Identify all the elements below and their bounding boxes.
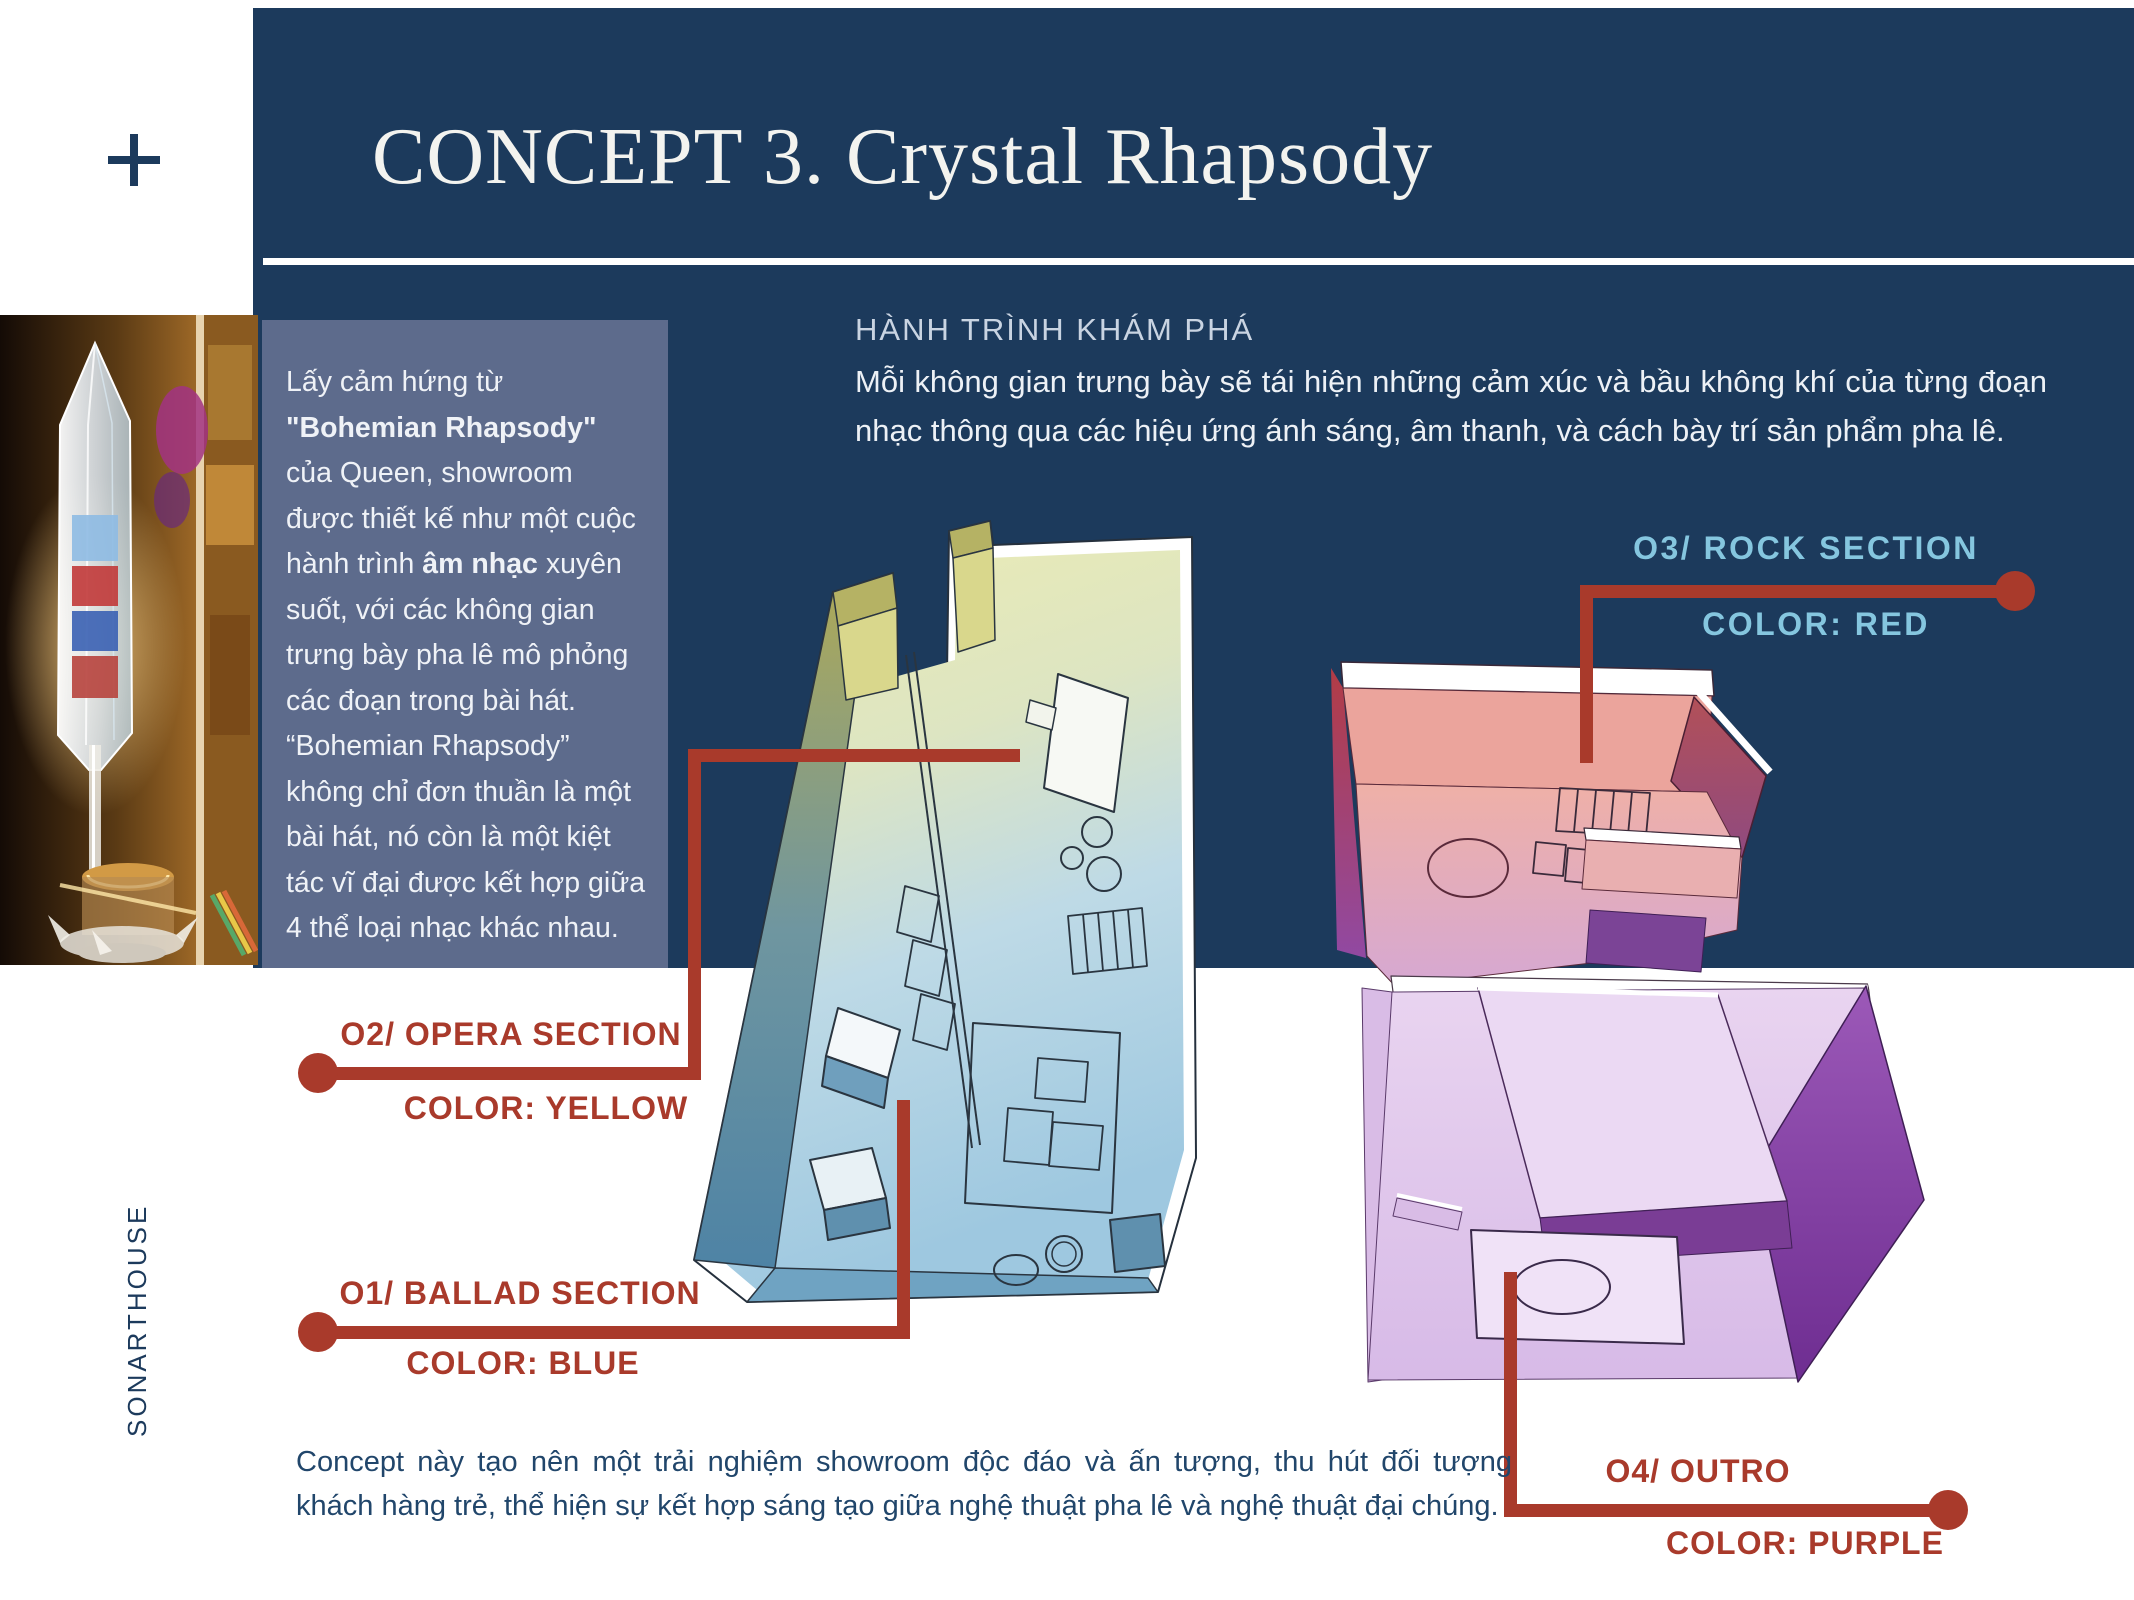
callout-color-rock: COLOR: RED [1702,606,1930,643]
callout-color-outro: COLOR: PURPLE [1666,1525,1944,1562]
callout-line-opera-h [688,749,1020,762]
callout-line-rock-h [1580,585,2015,598]
callout-dot-ballad [298,1312,338,1352]
callout-color-ballad: COLOR: BLUE [406,1345,639,1382]
callout-dot-outro [1928,1490,1968,1530]
floorplan-opera-ballad [694,521,1196,1302]
callout-line-rock-v [1580,585,1593,763]
callout-dot-rock [1995,571,2035,611]
callout-line-opera-v [688,749,701,1080]
callout-label-opera: O2/ OPERA SECTION [340,1016,681,1053]
brand-vertical: SONARTHOUSE [122,1212,166,1437]
footer-paragraph: Concept này tạo nên một trải nghiệm show… [296,1440,1512,1528]
callout-label-rock: O3/ ROCK SECTION [1633,530,1979,567]
callout-dot-opera [298,1053,338,1093]
callout-line-ballad-v [897,1100,910,1339]
callout-label-outro: O4/ OUTRO [1605,1453,1790,1490]
floorplans-illustration [0,0,2134,1600]
callout-line-outro-h [1504,1504,1948,1517]
callout-label-ballad: O1/ BALLAD SECTION [339,1275,700,1312]
callout-line-ballad-h [318,1326,910,1339]
floorplan-rock-outro [1331,662,1930,1388]
callout-line-opera-h2 [318,1067,701,1080]
callout-color-opera: COLOR: YELLOW [404,1090,688,1127]
